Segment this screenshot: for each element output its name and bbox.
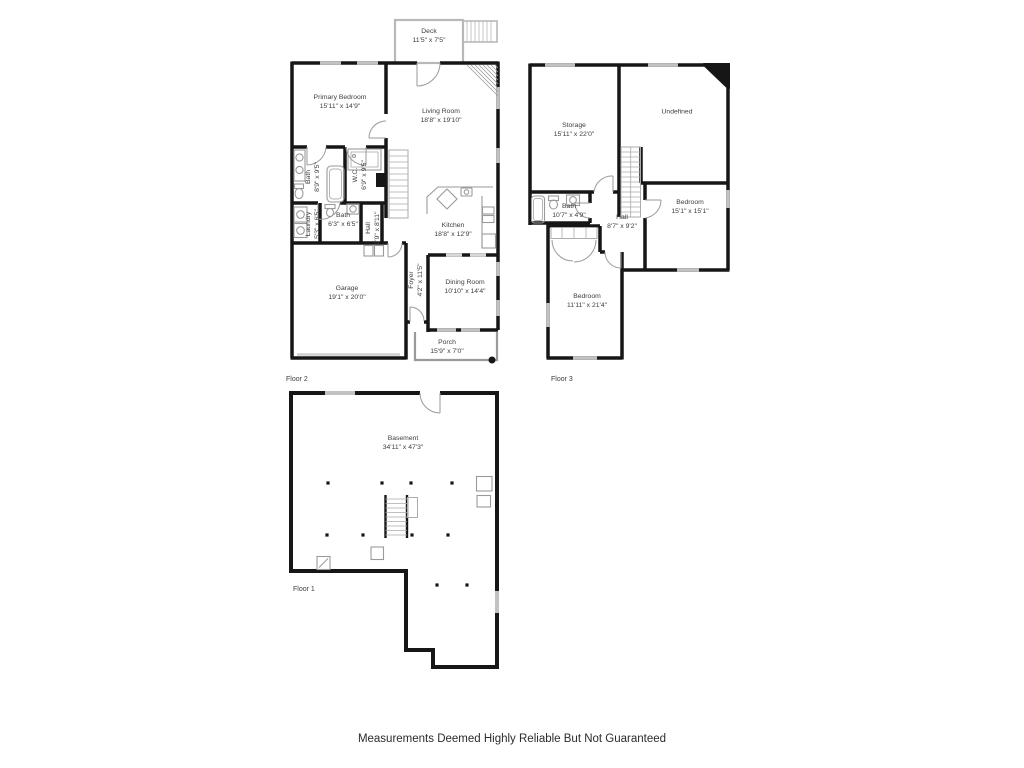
utility-boxes-icon: [364, 246, 384, 257]
toilet-icon: [295, 184, 304, 189]
sink-icon: [296, 166, 303, 173]
room-label-bedroom-lower: Bedroom11'11" x 21'4": [567, 292, 607, 310]
room-label-deck: Deck11'5" x 7'5": [413, 27, 446, 45]
room-label-dining-room: Dining Room10'10" x 14'4": [444, 278, 485, 296]
deck-outline: [395, 20, 497, 63]
furnace-icon: [477, 477, 493, 492]
floorplan-page: Deck11'5" x 7'5" Primary Bedroom15'11" x…: [0, 0, 1024, 768]
staircase-icon-f2: [389, 150, 408, 218]
floor3-caption: Floor 3: [551, 376, 573, 383]
room-label-hall-f3: Hall8'7" x 9'2": [607, 213, 637, 231]
floor1-windows: [325, 393, 497, 613]
room-label-porch: Porch15'9" x 7'0": [430, 338, 464, 356]
room-label-undefined: Undefined: [662, 107, 693, 116]
room-label-bedroom-right: Bedroom15'1" x 15'1": [671, 198, 708, 216]
room-label-wc: W.C.6'9" x 9'5": [351, 160, 369, 190]
floor2-caption: Floor 2: [286, 376, 308, 383]
room-label-bath-primary: Bath8'9" x 9'5": [304, 162, 322, 192]
room-label-living-room: Living Room18'8" x 19'10": [420, 107, 461, 125]
room-label-kitchen: Kitchen18'8" x 12'9": [434, 221, 471, 239]
corner-stairs-icon: [467, 65, 498, 96]
equipment-box-icon: [371, 547, 384, 560]
room-label-garage: Garage19'1" x 20'0": [328, 284, 365, 302]
room-label-bath-small: Bath6'3" x 6'5": [328, 211, 358, 229]
room-label-basement: Basement34'11" x 47'3": [383, 434, 424, 452]
deck-stairs-icon: [463, 21, 497, 42]
fridge-icon: [482, 234, 496, 248]
water-heater-icon: [477, 496, 491, 508]
floor1-caption: Floor 1: [293, 586, 315, 593]
floor1-door: [420, 393, 440, 413]
wall-block: [376, 173, 386, 187]
room-label-storage: Storage15'11" x 22'0": [554, 121, 595, 139]
stove-icon: [483, 207, 495, 214]
toilet-icon: [325, 205, 335, 209]
equipment-icons: [317, 477, 492, 570]
measurements-disclaimer: Measurements Deemed Highly Reliable But …: [0, 733, 1024, 745]
porch-post-icon: [489, 357, 496, 364]
closet-icon: [551, 228, 597, 239]
room-label-primary-bedroom: Primary Bedroom15'11" x 14'9": [314, 93, 367, 111]
staircase-icon-f1: [386, 495, 418, 538]
room-label-bath-f3: Bath10'7" x 4'9": [552, 202, 586, 220]
staircase-icon-f3: [621, 147, 641, 217]
kitchen-island-icon: [437, 189, 457, 209]
room-label-foyer: Foyer4'2" x 11'5": [407, 264, 425, 297]
room-label-laundry: Laundry5'3" x 6'5": [304, 209, 322, 239]
sink-icon: [296, 154, 303, 161]
room-label-hall-f2: Hall2'9" x 8'11": [364, 212, 382, 245]
floorplan-drawing: [0, 0, 1024, 768]
